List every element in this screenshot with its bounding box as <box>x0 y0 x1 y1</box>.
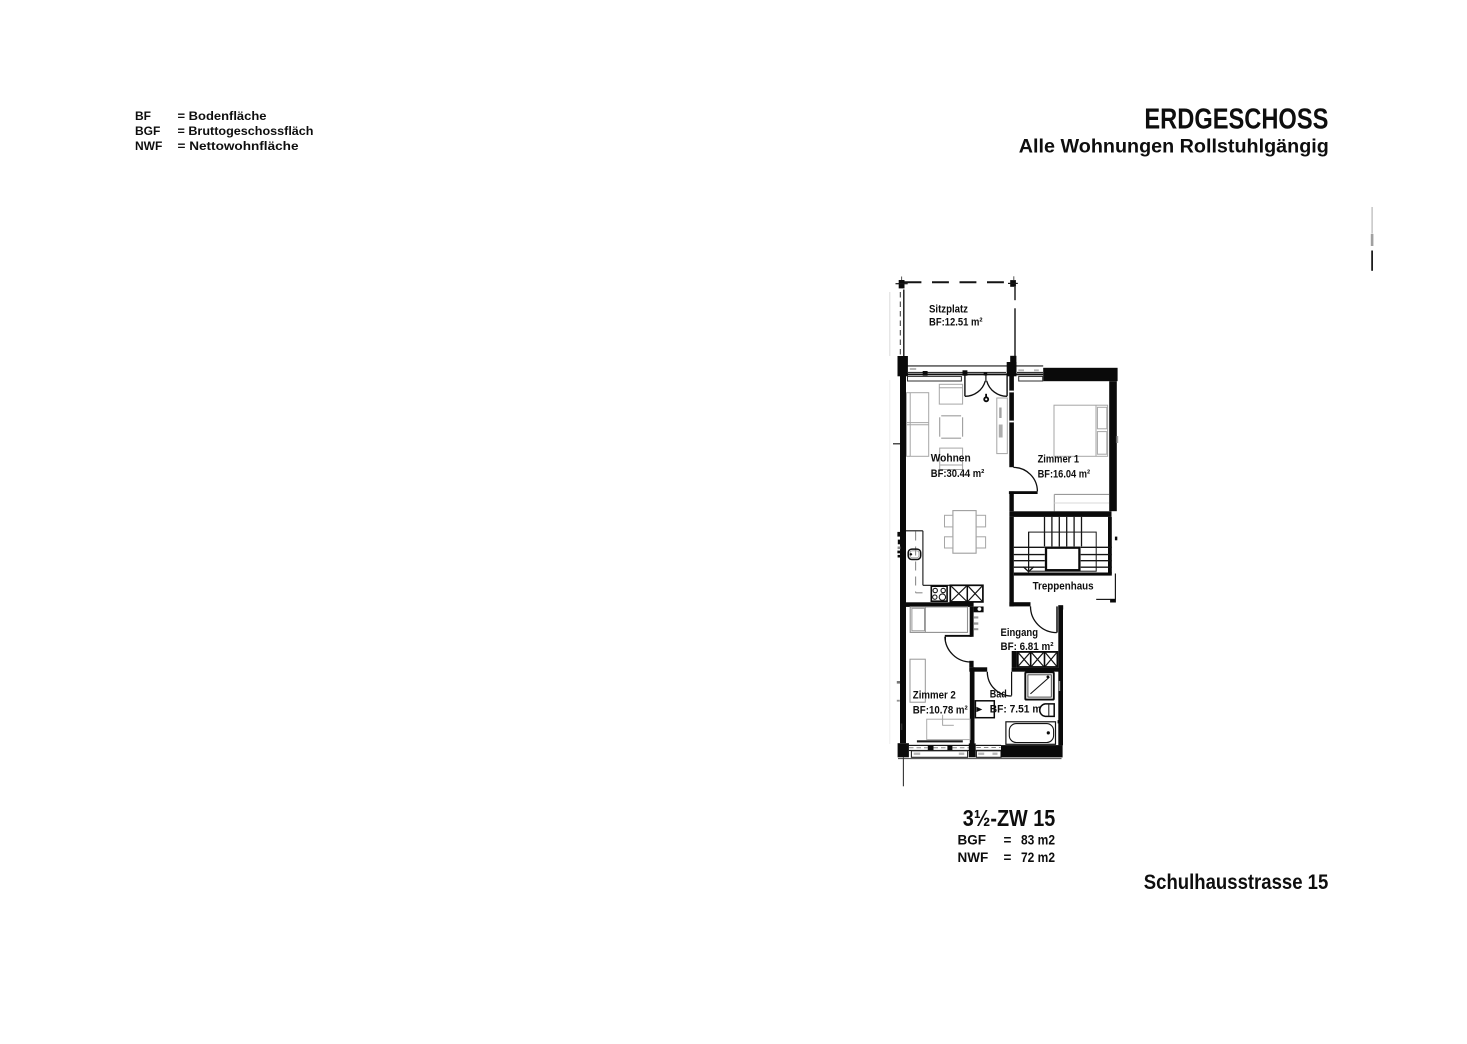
svg-text:= Bodenfläche: = Bodenfläche <box>178 109 267 123</box>
svg-text:3½-ZW 15: 3½-ZW 15 <box>963 805 1056 831</box>
svg-text:NWF: NWF <box>958 850 989 865</box>
svg-text:Zimmer 2: Zimmer 2 <box>913 690 956 702</box>
svg-text:BF:16.04 m²: BF:16.04 m² <box>1038 468 1091 480</box>
svg-text:83 m2: 83 m2 <box>1021 833 1055 848</box>
svg-text:72 m2: 72 m2 <box>1021 850 1055 865</box>
svg-text:Schulhausstrasse 15: Schulhausstrasse 15 <box>1144 870 1329 894</box>
svg-text:Bad: Bad <box>990 689 1007 701</box>
svg-text:Eingang: Eingang <box>1001 627 1039 639</box>
svg-text:BGF: BGF <box>958 833 987 848</box>
svg-text:BGF: BGF <box>135 124 160 138</box>
svg-text:NWF: NWF <box>135 139 162 153</box>
svg-text:BF: 7.51 m²: BF: 7.51 m² <box>990 703 1045 715</box>
svg-text:Sitzplatz: Sitzplatz <box>929 304 968 316</box>
svg-text:=: = <box>1004 833 1012 848</box>
svg-text:=: = <box>1004 850 1012 865</box>
svg-text:BF:30.44 m²: BF:30.44 m² <box>931 468 985 480</box>
svg-text:Zimmer 1: Zimmer 1 <box>1038 453 1080 465</box>
svg-text:BF:10.78 m²: BF:10.78 m² <box>913 704 968 716</box>
svg-text:= Bruttogeschossfläch: = Bruttogeschossfläch <box>178 124 314 138</box>
svg-text:= Nettowohnfläche: = Nettowohnfläche <box>178 139 299 153</box>
svg-text:Wohnen: Wohnen <box>931 453 971 465</box>
svg-text:Alle Wohnungen Rollstuhlgängig: Alle Wohnungen Rollstuhlgängig <box>1019 137 1329 158</box>
svg-text:ERDGESCHOSS: ERDGESCHOSS <box>1144 103 1328 135</box>
svg-text:Treppenhaus: Treppenhaus <box>1033 580 1094 592</box>
svg-text:BF: BF <box>135 109 151 123</box>
svg-text:BF:12.51 m²: BF:12.51 m² <box>929 317 983 329</box>
